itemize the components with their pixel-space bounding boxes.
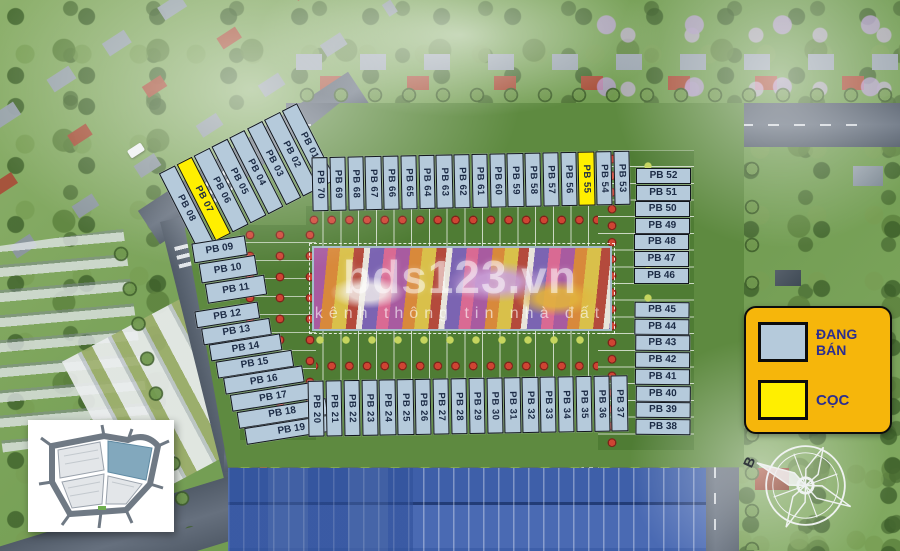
plot-pb-67[interactable]: PB 67 xyxy=(365,156,383,210)
plot-pb-41[interactable]: PB 41 xyxy=(635,369,690,385)
plot-label: PB 67 xyxy=(368,169,378,198)
plot-label: PB 58 xyxy=(528,165,538,194)
plot-label: PB 41 xyxy=(649,372,677,382)
land-plot-masterplan: PB 08PB 07PB 06PB 05PB 04PB 03PB 02PB 01… xyxy=(0,0,900,551)
plot-pb-65[interactable]: PB 65 xyxy=(400,155,418,209)
plot-label: PB 48 xyxy=(648,237,676,247)
plot-label: PB 53 xyxy=(617,163,627,192)
plot-label: PB 69 xyxy=(333,169,343,198)
plot-pb-59[interactable]: PB 59 xyxy=(507,153,525,207)
plot-label: PB 52 xyxy=(650,171,678,181)
plot-label: PB 30 xyxy=(490,391,500,420)
plot-label: PB 63 xyxy=(439,167,449,196)
plot-label: PB 14 xyxy=(231,340,260,354)
plot-label: PB 15 xyxy=(240,357,269,371)
plot-pb-52[interactable]: PB 52 xyxy=(636,168,691,184)
plot-pb-57[interactable]: PB 57 xyxy=(542,152,560,206)
plot-label: PB 59 xyxy=(510,166,520,195)
garden-strip-upper xyxy=(306,206,636,248)
plot-label: PB 09 xyxy=(205,242,234,256)
plot-label: PB 56 xyxy=(564,164,574,193)
plot-pb-49[interactable]: PB 49 xyxy=(635,218,690,234)
plot-pb-32[interactable]: PB 32 xyxy=(522,377,539,433)
plot-pb-55[interactable]: PB 55 xyxy=(578,151,596,205)
plot-label: PB 29 xyxy=(472,391,482,420)
plot-pb-66[interactable]: PB 66 xyxy=(382,156,400,210)
plot-pb-22[interactable]: PB 22 xyxy=(343,380,360,436)
plot-pb-23[interactable]: PB 23 xyxy=(361,380,378,436)
plot-label: PB 65 xyxy=(404,168,414,197)
plot-pb-44[interactable]: PB 44 xyxy=(635,318,690,334)
compass-rose-icon xyxy=(748,428,863,543)
plot-label: PB 57 xyxy=(546,165,556,194)
plot-label: PB 31 xyxy=(508,391,518,420)
plot-group-right-lower: PB 45PB 44PB 43PB 42PB 41PB 40PB 39PB 38 xyxy=(633,302,690,438)
plot-pb-27[interactable]: PB 27 xyxy=(432,378,449,434)
plot-pb-40[interactable]: PB 40 xyxy=(635,385,690,401)
plot-label: PB 17 xyxy=(259,390,288,404)
plot-pb-45[interactable]: PB 45 xyxy=(634,302,689,318)
central-flower-garden xyxy=(312,246,612,331)
plot-pb-20[interactable]: PB 20 xyxy=(308,381,325,437)
plot-label: PB 20 xyxy=(311,394,321,423)
plot-pb-51[interactable]: PB 51 xyxy=(636,185,691,201)
plot-pb-43[interactable]: PB 43 xyxy=(635,335,690,351)
legend-label-available: ĐANG BÁN xyxy=(816,322,890,362)
plot-label: PB 54 xyxy=(599,164,609,193)
plot-pb-38[interactable]: PB 38 xyxy=(636,419,691,435)
legend-swatch-deposit xyxy=(758,380,808,420)
plot-pb-56[interactable]: PB 56 xyxy=(560,152,578,206)
plot-pb-37[interactable]: PB 37 xyxy=(611,375,628,431)
plot-label: PB 49 xyxy=(648,221,676,231)
plot-pb-63[interactable]: PB 63 xyxy=(436,154,454,208)
plot-group-left-lower: PB 12PB 13PB 14PB 15PB 16PB 17PB 18PB 19 xyxy=(194,294,325,454)
plot-pb-35[interactable]: PB 35 xyxy=(575,376,592,432)
legend-label-deposit: CỌC xyxy=(816,380,890,420)
plot-pb-26[interactable]: PB 26 xyxy=(415,379,432,435)
plot-label: PB 62 xyxy=(457,167,467,196)
plot-label: PB 42 xyxy=(649,355,677,365)
plot-pb-54[interactable]: PB 54 xyxy=(595,151,613,205)
plot-pb-64[interactable]: PB 64 xyxy=(418,155,436,209)
plot-group-left-upper: PB 09PB 10PB 11 xyxy=(191,231,280,309)
plot-pb-61[interactable]: PB 61 xyxy=(471,154,489,208)
plot-label: PB 10 xyxy=(213,262,242,276)
plot-label: PB 34 xyxy=(561,390,571,419)
plot-label: PB 47 xyxy=(648,254,676,264)
plot-label: PB 43 xyxy=(648,338,676,348)
plot-pb-25[interactable]: PB 25 xyxy=(397,379,414,435)
plot-pb-36[interactable]: PB 36 xyxy=(593,376,610,432)
plot-label: PB 36 xyxy=(597,389,607,418)
plot-label: PB 19 xyxy=(277,422,306,436)
plot-label: PB 51 xyxy=(649,188,677,198)
plot-label: PB 28 xyxy=(454,392,464,421)
plot-label: PB 27 xyxy=(436,392,446,421)
plot-label: PB 40 xyxy=(649,388,677,398)
plot-pb-21[interactable]: PB 21 xyxy=(325,380,342,436)
compass-rose: B xyxy=(748,428,863,543)
plot-pb-31[interactable]: PB 31 xyxy=(504,377,521,433)
map-legend: ĐANG BÁN CỌC xyxy=(744,306,892,434)
plot-label: PB 70 xyxy=(315,170,325,199)
plot-group-right-upper: PB 52PB 51PB 50PB 49PB 48PB 47PB 46 xyxy=(636,168,692,286)
inset-location-map xyxy=(28,420,174,532)
garden-strip-lower xyxy=(306,330,636,380)
plot-label: PB 23 xyxy=(365,393,375,422)
plot-pb-33[interactable]: PB 33 xyxy=(540,376,557,432)
plot-label: PB 37 xyxy=(615,389,625,418)
plot-label: PB 45 xyxy=(648,305,676,315)
plot-pb-58[interactable]: PB 58 xyxy=(524,153,542,207)
plot-pb-53[interactable]: PB 53 xyxy=(613,151,631,205)
plot-pb-28[interactable]: PB 28 xyxy=(450,378,467,434)
plot-pb-69[interactable]: PB 69 xyxy=(329,157,347,211)
plot-label: PB 55 xyxy=(581,164,591,193)
street-trees-top xyxy=(290,84,900,106)
plot-label: PB 22 xyxy=(347,394,357,423)
plot-pb-46[interactable]: PB 46 xyxy=(634,268,689,284)
plot-label: PB 66 xyxy=(386,168,396,197)
plot-pb-50[interactable]: PB 50 xyxy=(635,201,690,217)
plot-pb-42[interactable]: PB 42 xyxy=(635,352,690,368)
plot-pb-34[interactable]: PB 34 xyxy=(557,376,574,432)
plot-label: PB 25 xyxy=(400,393,410,422)
plot-label: PB 64 xyxy=(422,167,432,196)
plot-label: PB 11 xyxy=(222,282,250,296)
plot-label: PB 24 xyxy=(383,393,393,422)
plot-group-top-row: PB 70PB 69PB 68PB 67PB 66PB 65PB 64PB 63… xyxy=(311,151,634,212)
plot-label: PB 50 xyxy=(649,204,677,214)
plot-label: PB 26 xyxy=(418,392,428,421)
legend-swatch-available xyxy=(758,322,808,362)
plot-pb-48[interactable]: PB 48 xyxy=(634,234,689,250)
plot-pb-70[interactable]: PB 70 xyxy=(311,157,329,211)
plot-label: PB 35 xyxy=(579,389,589,418)
blue-roof-houses-dark xyxy=(228,468,413,551)
plot-label: PB 18 xyxy=(268,406,297,420)
plot-label: PB 32 xyxy=(525,390,535,419)
plot-label: PB 68 xyxy=(351,169,361,198)
plot-pb-47[interactable]: PB 47 xyxy=(634,251,689,267)
plot-pb-60[interactable]: PB 60 xyxy=(489,153,507,207)
plot-pb-62[interactable]: PB 62 xyxy=(453,154,471,208)
plot-label: PB 44 xyxy=(648,322,676,332)
plot-pb-24[interactable]: PB 24 xyxy=(379,379,396,435)
plot-label: PB 16 xyxy=(249,373,278,387)
inset-map-drawing xyxy=(28,420,174,532)
plot-pb-39[interactable]: PB 39 xyxy=(635,402,690,418)
plot-label: PB 60 xyxy=(493,166,503,195)
plot-pb-29[interactable]: PB 29 xyxy=(468,378,485,434)
plot-label: PB 39 xyxy=(649,405,677,415)
plot-label: PB 12 xyxy=(213,308,242,322)
plot-pb-68[interactable]: PB 68 xyxy=(347,156,365,210)
plot-label: PB 46 xyxy=(647,271,675,281)
plot-label: PB 13 xyxy=(222,324,251,338)
plot-label: PB 33 xyxy=(543,390,553,419)
plot-label: PB 38 xyxy=(649,422,677,432)
plot-label: PB 61 xyxy=(475,166,485,195)
plot-group-bottom-row: PB 20PB 21PB 22PB 23PB 24PB 25PB 26PB 27… xyxy=(308,375,633,437)
plot-pb-30[interactable]: PB 30 xyxy=(486,377,503,433)
plot-label: PB 21 xyxy=(329,394,339,423)
